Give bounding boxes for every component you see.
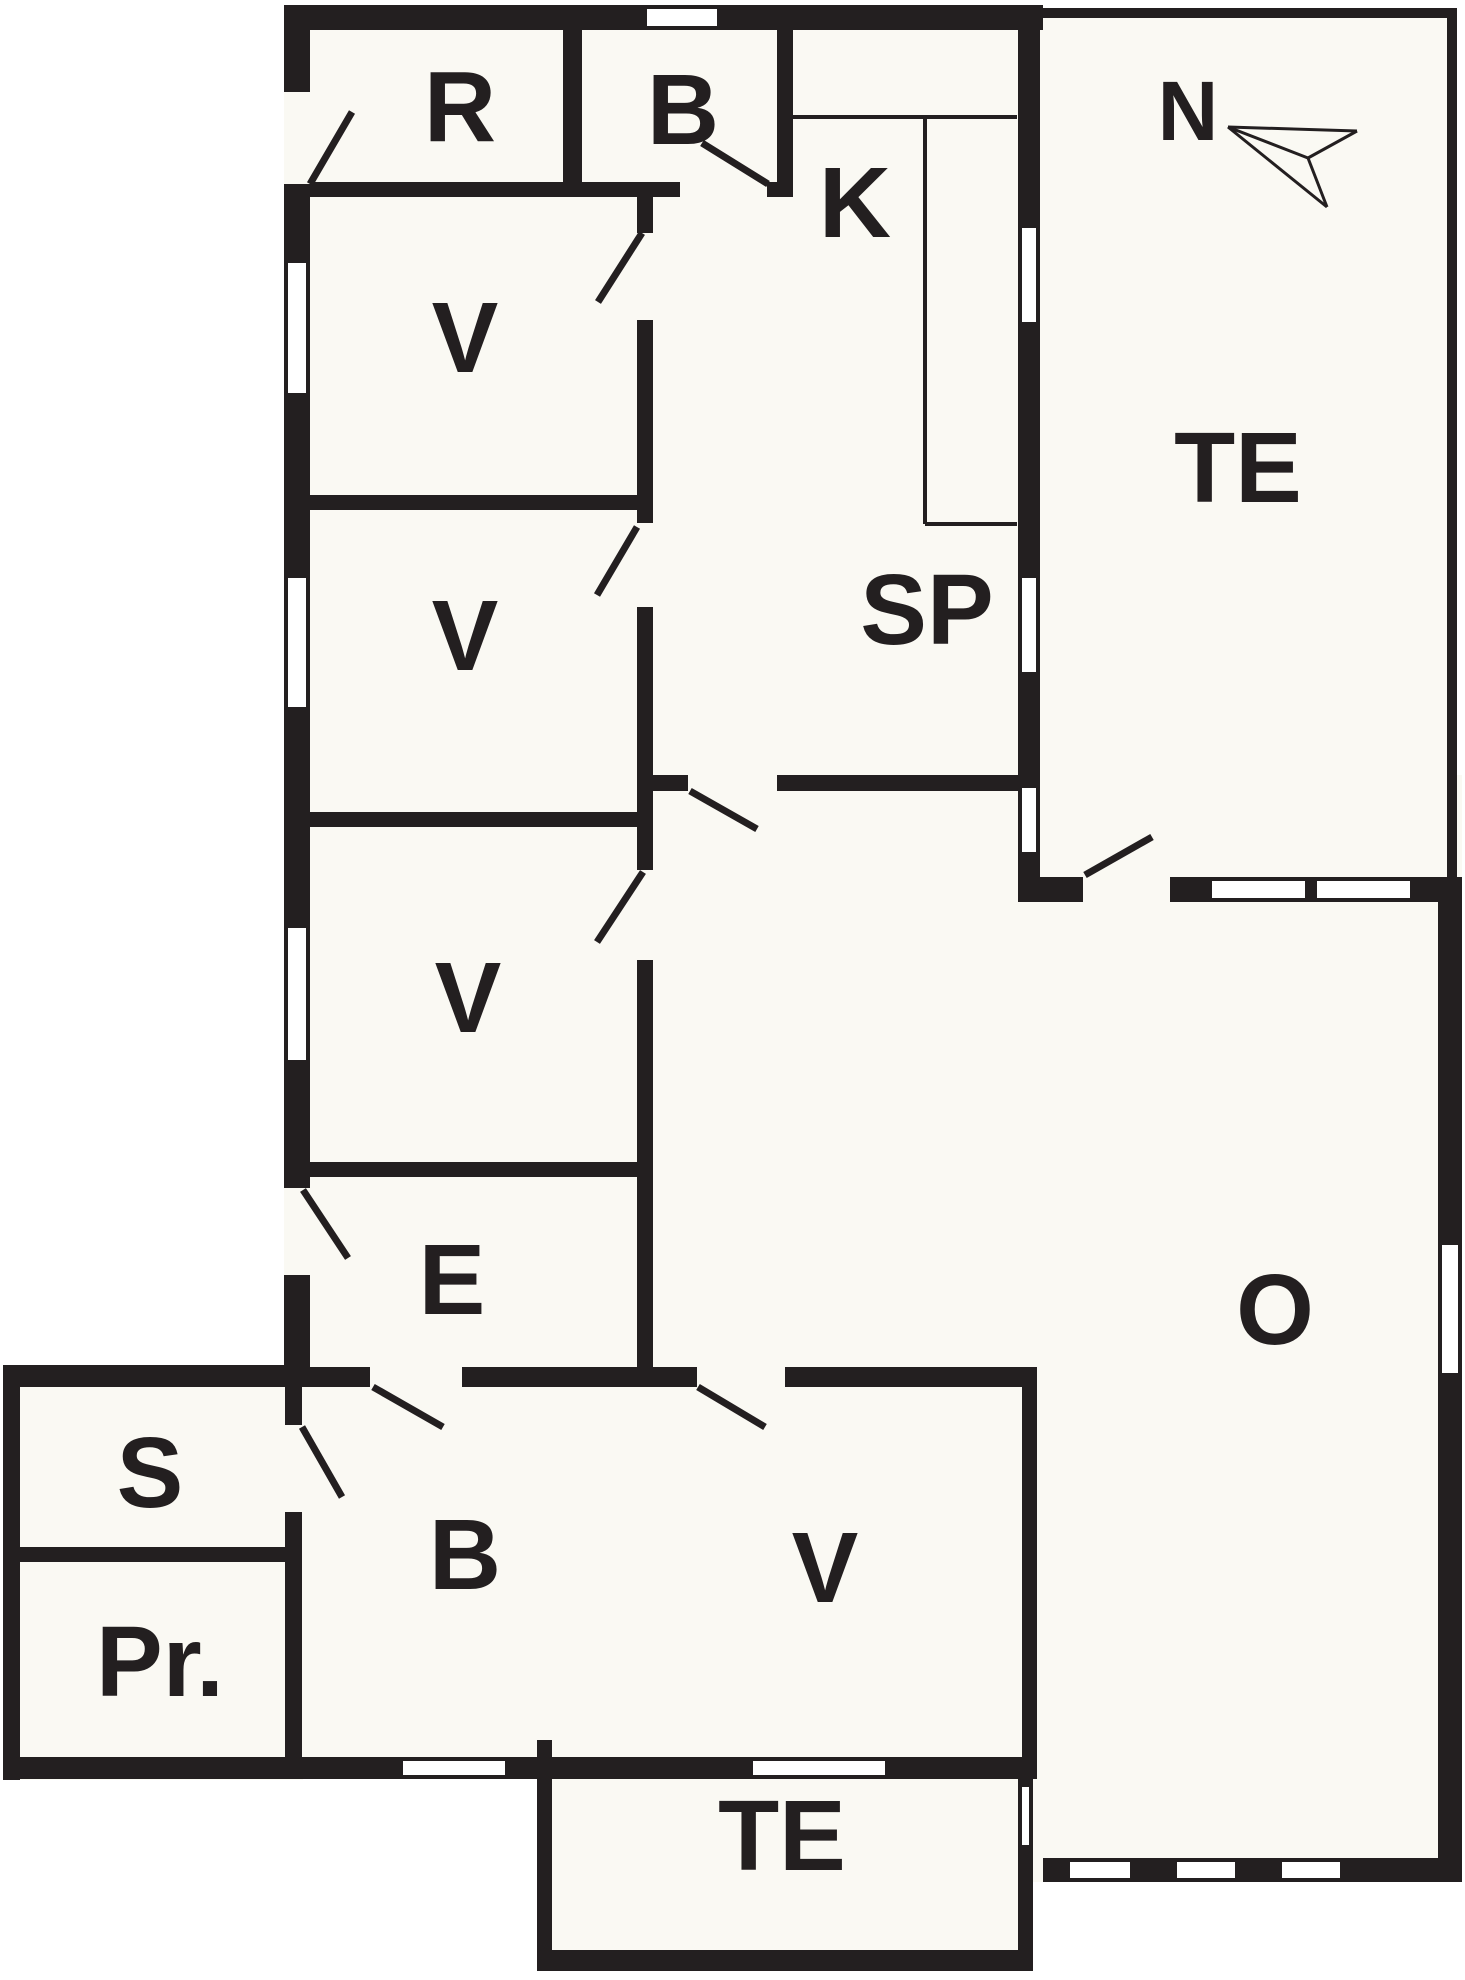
room-label-pr: Pr. — [96, 1606, 224, 1718]
room-label-s: S — [117, 1417, 184, 1529]
wall — [537, 1950, 1033, 1971]
wall — [303, 1162, 653, 1177]
wall — [767, 182, 793, 197]
wall — [20, 1547, 285, 1562]
door-opening — [637, 233, 653, 320]
wall — [1018, 18, 1040, 902]
room-label-o: O — [1236, 1254, 1314, 1366]
wall — [777, 5, 793, 197]
room-label-te-upper: TE — [1174, 412, 1302, 524]
wall — [284, 182, 680, 197]
door-opening — [697, 1367, 785, 1387]
door-opening — [680, 182, 767, 197]
wall — [637, 197, 653, 1387]
wall — [777, 775, 1018, 791]
room-label-v1: V — [432, 282, 499, 394]
wall — [1438, 902, 1462, 1882]
floor-area — [653, 775, 1462, 1882]
floor-plan: NRBKVVVSPTEESPr.BVOTE — [0, 0, 1465, 1980]
wall — [537, 1740, 552, 1971]
wall — [652, 775, 688, 791]
door-opening — [1083, 877, 1170, 902]
door-opening — [284, 92, 310, 184]
room-label-r: R — [424, 51, 496, 163]
door-opening — [284, 1188, 310, 1275]
compass-north-label: N — [1158, 64, 1219, 158]
room-label-b-bottom: B — [429, 1499, 501, 1611]
door-opening — [370, 1367, 462, 1387]
door-opening — [637, 523, 653, 607]
room-label-v3: V — [435, 942, 502, 1054]
wall — [303, 812, 653, 827]
room-label-v4: V — [792, 1512, 859, 1624]
terrace-wall — [1447, 8, 1457, 902]
wall — [303, 495, 653, 510]
wall — [563, 5, 582, 197]
room-label-e: E — [419, 1224, 486, 1336]
wall — [3, 1365, 20, 1780]
room-label-v2: V — [432, 580, 499, 692]
door-opening — [285, 1425, 302, 1512]
room-label-te-lower: TE — [718, 1780, 846, 1892]
room-label-k: K — [819, 147, 891, 259]
wall — [3, 1365, 284, 1387]
room-label-b-top: B — [647, 54, 719, 166]
wall — [1022, 1387, 1037, 1777]
floor-plan-canvas: NRBKVVVSPTEESPr.BVOTE — [0, 0, 1465, 1980]
room-label-sp: SP — [860, 554, 993, 666]
terrace-wall — [1043, 8, 1457, 18]
